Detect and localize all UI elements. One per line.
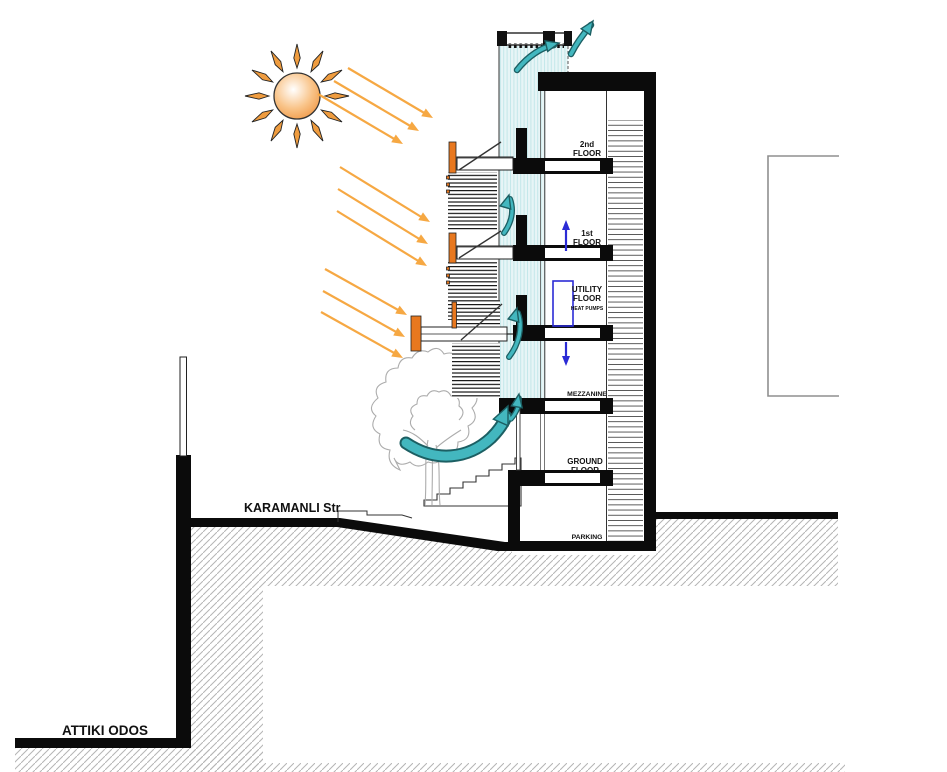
chimney-cap-block-right xyxy=(564,31,572,46)
stair-shaft xyxy=(608,120,643,541)
label-heat-pumps: HEAT PUMPS xyxy=(571,306,604,312)
louver-stack-1 xyxy=(448,172,497,231)
sun-icon xyxy=(245,44,349,148)
foundation-slab xyxy=(508,541,656,551)
label-utility-floor-l1: UTILITY xyxy=(572,285,603,294)
louver-stack-3-lower xyxy=(452,343,500,398)
label-attiki-odos: ATTIKI ODOS xyxy=(62,723,148,738)
barrier-post xyxy=(180,357,187,456)
heat-pump-shaft xyxy=(553,281,573,326)
chimney-vent-teeth xyxy=(507,44,543,49)
chimney-cap xyxy=(498,33,571,45)
label-2nd-floor-l2: FLOOR xyxy=(573,149,601,158)
architectural-section-diagram: 2nd FLOOR 1st FLOOR UTILITY FLOOR HEAT P… xyxy=(0,0,947,772)
retaining-wall xyxy=(176,455,191,748)
section-drawing: 2nd FLOOR 1st FLOOR UTILITY FLOOR HEAT P… xyxy=(0,0,947,772)
label-2nd-floor-l1: 2nd xyxy=(580,140,594,149)
sun-disc xyxy=(274,73,320,119)
right-wall xyxy=(644,72,656,550)
earth-hatch-bottom xyxy=(15,748,845,772)
neighbor-building-outline xyxy=(768,156,839,396)
facade-louvers xyxy=(411,140,513,398)
heat-pump-distribution xyxy=(553,220,573,366)
label-1st-floor-l1: 1st xyxy=(581,229,593,238)
solar-arrow-group-lower xyxy=(321,269,409,362)
label-mezzanine: MEZZANINE xyxy=(567,391,607,398)
solar-arrow-group-upper xyxy=(318,68,435,148)
label-ground-floor-l1: GROUND xyxy=(567,457,603,466)
label-1st-floor-l2: FLOOR xyxy=(573,238,601,247)
window-stubs xyxy=(516,128,527,327)
solar-arrow-group-middle xyxy=(337,167,432,270)
street-attiki-slab xyxy=(15,738,191,748)
roof-slab xyxy=(538,72,656,91)
site-ground xyxy=(15,357,845,772)
louver-stack-3-upper xyxy=(452,300,500,329)
label-parking: PARKING xyxy=(572,534,603,541)
label-utility-floor-l2: FLOOR xyxy=(573,294,601,303)
right-grade-slab xyxy=(655,512,838,519)
chimney-cap-block-left xyxy=(497,31,507,46)
earth-hatch-upper xyxy=(188,519,838,772)
label-ground-floor-l2: FLOOR xyxy=(571,466,599,475)
label-karamanli-street: KARAMANLI Str xyxy=(244,501,341,515)
